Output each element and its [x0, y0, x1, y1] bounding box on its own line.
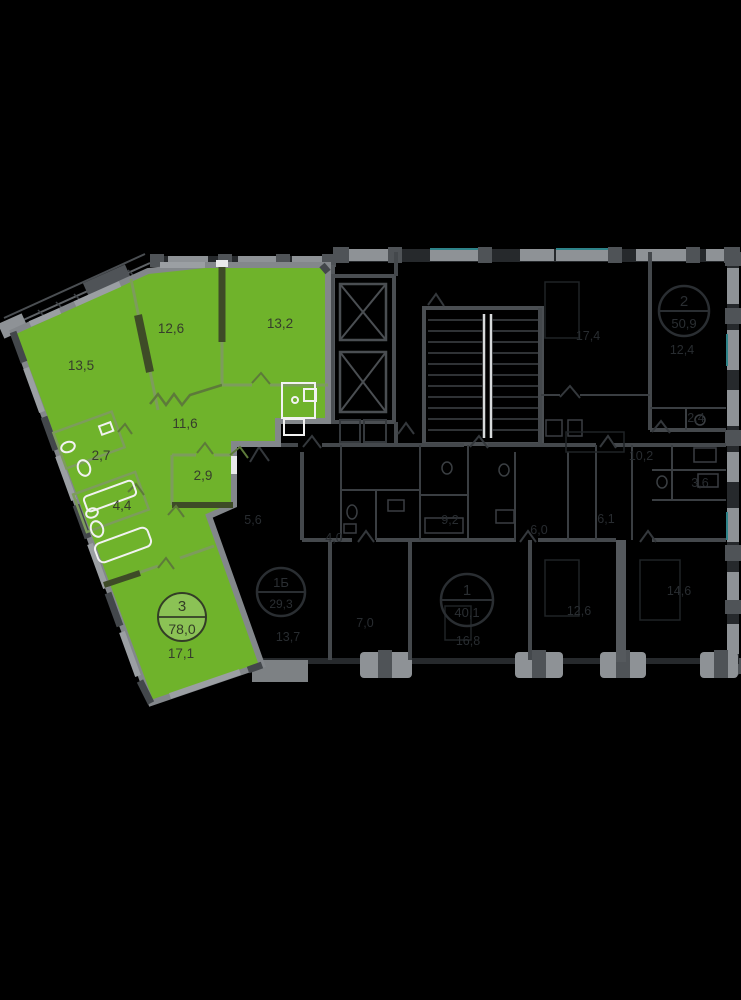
neighbor-badge: 1Б 29,3	[257, 568, 305, 616]
room-area-label: 12,6	[158, 321, 184, 336]
room-area-label: 2,9	[194, 468, 213, 483]
badge-total-area: 78,0	[168, 621, 195, 637]
staircase	[424, 308, 542, 444]
neighbor-badge-rooms: 2	[680, 293, 688, 310]
neighbor-area: 17,4	[576, 329, 600, 343]
badge-rooms-count: 3	[178, 598, 186, 615]
neighbor-area: 3,6	[691, 476, 708, 490]
neighbor-badge-area: 50,9	[671, 316, 696, 331]
neighbor-area: 12,4	[670, 343, 694, 357]
neighbor-area: 2,4	[687, 411, 704, 425]
neighbor-area: 6,1	[597, 512, 614, 526]
floor-plan-screen: 13,5 12,6 13,2 11,6 2,7 2,9 4,4 17,1 3 7…	[0, 0, 741, 1000]
neighbor-badge-area: 29,3	[269, 597, 293, 611]
room-area-label: 4,4	[113, 498, 132, 513]
floor-plan-svg: 13,5 12,6 13,2 11,6 2,7 2,9 4,4 17,1 3 7…	[0, 0, 741, 1000]
room-area-label: 2,7	[92, 448, 111, 463]
neighbor-area: 13,7	[276, 630, 300, 644]
room-area-label: 17,1	[168, 646, 194, 661]
neighbor-area: 10,2	[629, 449, 653, 463]
room-area-label: 13,2	[267, 316, 293, 331]
neighbor-area: 7,0	[356, 616, 373, 630]
neighbor-badge: 2 50,9	[659, 286, 709, 336]
neighbor-badge-rooms: 1	[463, 582, 471, 599]
neighbor-area: 6,0	[530, 523, 547, 537]
neighbor-area: 5,6	[244, 513, 261, 527]
neighbor-badge: 1 40,1	[441, 574, 493, 626]
neighbor-area: 14,6	[667, 584, 691, 598]
neighbor-badge-area: 40,1	[454, 605, 479, 620]
neighbor-area: 12,6	[567, 604, 591, 618]
neighbor-badge-rooms: 1Б	[273, 575, 289, 590]
apartment-badge: 3 78,0	[158, 593, 206, 641]
elevator-shafts	[330, 265, 394, 442]
neighbor-area: 16,8	[456, 634, 480, 648]
room-area-label: 13,5	[68, 358, 94, 373]
room-area-label: 11,6	[172, 416, 197, 431]
neighbor-area: 4,0	[325, 531, 342, 545]
neighbor-area: 9,2	[441, 513, 458, 527]
